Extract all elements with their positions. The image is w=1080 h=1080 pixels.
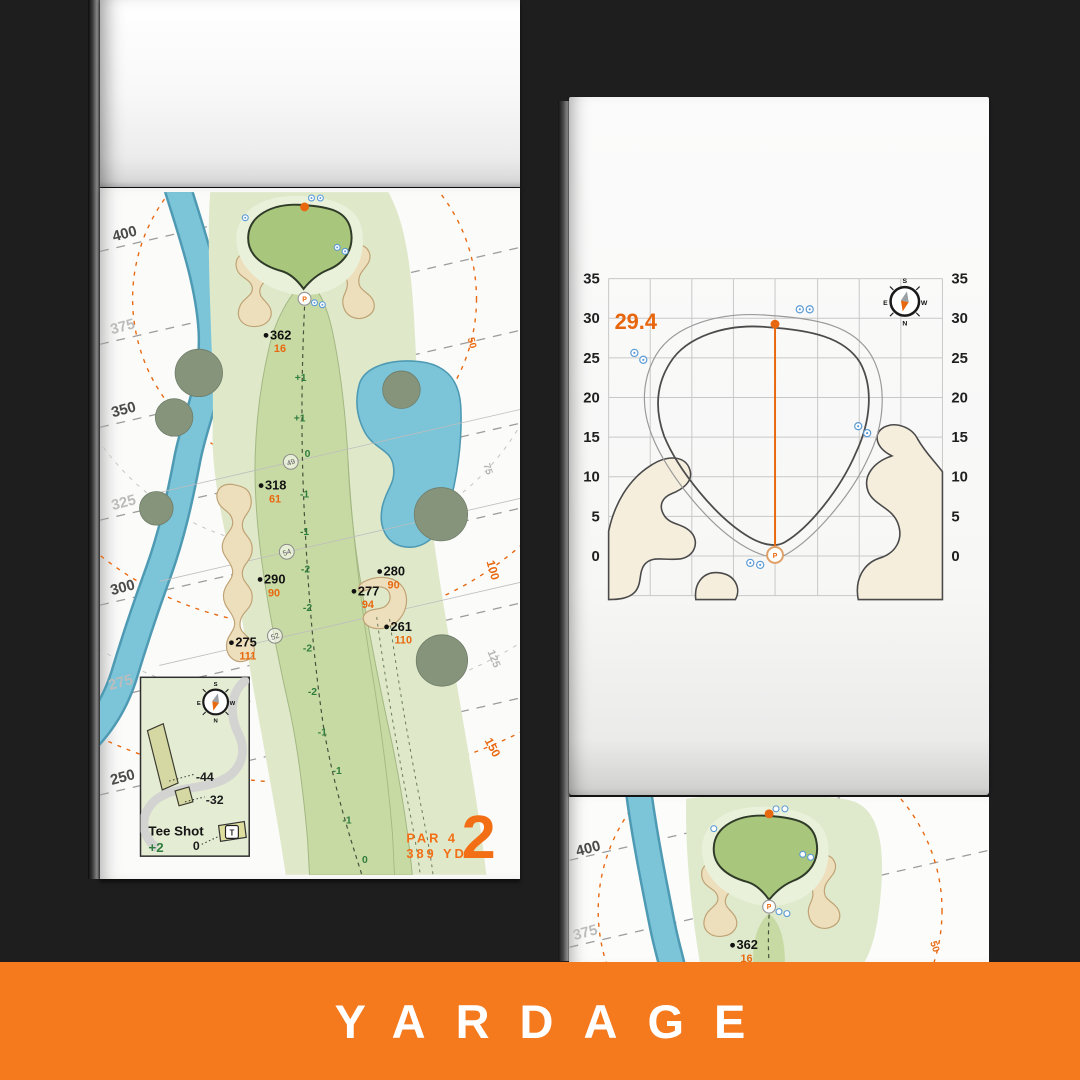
marker-distance: 362: [737, 937, 758, 952]
green-outline-inner: [658, 326, 869, 545]
marker-dot: [730, 943, 735, 948]
front-edge-dot: [300, 202, 309, 211]
banner-title: YARDAGE: [305, 994, 776, 1049]
marker-distance: 277: [358, 583, 379, 598]
marker-carry: 16: [274, 343, 286, 355]
product-photo: P: [0, 0, 1080, 1080]
arc-label: 125: [485, 648, 503, 669]
tick-label: 30: [583, 311, 600, 327]
yardage-book-left: P: [88, 0, 520, 879]
tick-label: 0: [591, 549, 599, 565]
tee-distance-label: 350: [110, 399, 138, 421]
center-value: 0: [362, 855, 368, 866]
marker-carry: 90: [268, 587, 280, 599]
pin-label: P: [302, 296, 307, 303]
center-value: +1: [295, 373, 307, 384]
next-hole-map: P 362 16 400 375 50: [569, 797, 989, 963]
marker-carry: 90: [388, 579, 400, 591]
tee-length-front: -32: [206, 793, 224, 807]
tee-distance-label: 375: [109, 316, 137, 338]
compass-e: E: [883, 300, 888, 307]
center-value: 0: [305, 449, 311, 460]
green-detail-page: 35 30 25 20 15 10 5 0 35 30 25 20 15 10 …: [569, 97, 989, 795]
center-value: -2: [303, 603, 312, 614]
arc-label: 50: [927, 940, 941, 954]
axis-ticks-right: 35 30 25 20 15 10 5 0: [951, 272, 968, 565]
marker-distance: 362: [270, 327, 291, 342]
marker-distance: 280: [384, 564, 405, 579]
tee-distance-label: 250: [109, 767, 137, 789]
marker-carry: 111: [239, 651, 256, 663]
arc-label: 100: [484, 559, 503, 582]
tick-label: 30: [951, 311, 968, 327]
depth-measure: P: [767, 320, 783, 563]
tee-distance-label: 375: [571, 922, 599, 944]
tick-label: 5: [591, 509, 599, 525]
tee-distance-label: 400: [111, 223, 139, 245]
compass-e: E: [197, 701, 201, 707]
green-detail-chart: 35 30 25 20 15 10 5 0 35 30 25 20 15 10 …: [569, 97, 989, 795]
tick-label: 35: [951, 272, 968, 288]
tick-label: 0: [951, 549, 959, 565]
marker-carry: 110: [394, 635, 412, 647]
tick-label: 25: [583, 351, 600, 367]
tick-label: 10: [583, 470, 600, 486]
tee-length-back: -44: [196, 770, 214, 784]
axis-ticks-left: 35 30 25 20 15 10 5 0: [583, 272, 600, 565]
tick-label: 10: [951, 470, 968, 486]
tee-marker: T: [219, 822, 247, 842]
compass-s: S: [903, 278, 908, 285]
inset-zero: 0: [193, 839, 200, 853]
next-hole-map-page: P 362 16 400 375 50: [569, 797, 989, 963]
tee-box-forward: [175, 787, 193, 806]
tick-label: 15: [951, 430, 968, 446]
tee-distance-label: 325: [110, 492, 138, 514]
tee-distance-label: 300: [109, 577, 137, 599]
arc-label: 150: [482, 735, 504, 759]
hole-number: 2: [462, 803, 496, 871]
pin-label: P: [767, 904, 772, 911]
flipped-blank-page: [100, 0, 520, 187]
hole-map-page: P: [100, 188, 520, 879]
compass-icon: S N W E: [883, 278, 928, 327]
yardage-book-right: 35 30 25 20 15 10 5 0 35 30 25 20 15 10 …: [558, 95, 990, 965]
creek: [100, 188, 212, 738]
center-value: -1: [333, 766, 342, 777]
tick-label: 25: [951, 351, 968, 367]
inset-score: +2: [148, 840, 163, 855]
green-depth-value: 29.4: [615, 309, 657, 334]
compass-s: S: [214, 682, 218, 688]
pin-flag: P: [298, 292, 311, 305]
par-label: PAR 4: [406, 830, 458, 845]
center-value: -1: [318, 728, 327, 739]
front-edge-dot: [765, 809, 774, 818]
center-value: -1: [300, 527, 309, 538]
arc-label: 75: [481, 462, 495, 476]
marker-distance: 275: [235, 635, 256, 650]
tee-shot-inset: -44 -32 Tee Shot +2 0 T: [141, 677, 250, 856]
tick-label: 35: [583, 272, 600, 288]
hole-map: P: [100, 188, 520, 879]
marker-distance: 261: [391, 619, 412, 634]
pin-flag: P: [763, 900, 776, 913]
arc-label: 50: [465, 336, 478, 350]
center-value: -2: [301, 565, 310, 576]
pin-label: P: [773, 553, 778, 560]
tick-label: 20: [951, 390, 968, 406]
yards-label: 389 YD: [406, 846, 466, 861]
center-value: -2: [303, 644, 312, 655]
marker-carry: 94: [362, 599, 374, 611]
tee-marker-label: T: [230, 828, 235, 837]
tick-label: 5: [951, 509, 959, 525]
tick-label: 15: [583, 430, 600, 446]
compass-w: W: [230, 701, 236, 707]
center-value: -1: [342, 816, 351, 827]
yardage-banner: YARDAGE: [0, 962, 1080, 1080]
inset-title: Tee Shot: [148, 823, 204, 838]
tee-distance-label: 400: [574, 838, 602, 860]
tick-label: 20: [583, 390, 600, 406]
center-value: -1: [300, 489, 309, 500]
compass-n: N: [902, 320, 907, 327]
compass-n: N: [213, 719, 217, 725]
center-value: +1: [294, 413, 306, 424]
arc-labels: 50 75 100 125 150: [465, 336, 504, 759]
center-value: -2: [308, 687, 317, 698]
compass-w: W: [921, 300, 928, 307]
marker-distance: 290: [264, 571, 285, 586]
creek: [639, 797, 673, 963]
marker-distance: 318: [265, 478, 286, 493]
marker-carry: 61: [269, 493, 281, 505]
